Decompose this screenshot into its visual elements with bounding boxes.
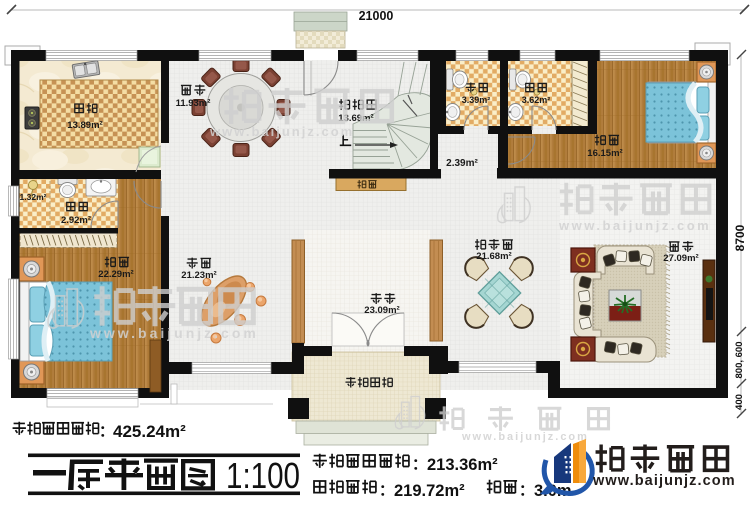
svg-text:213.36m²: 213.36m² bbox=[427, 456, 498, 474]
svg-text:：: ： bbox=[519, 482, 534, 499]
svg-text:www.baijunjz.com: www.baijunjz.com bbox=[558, 218, 711, 233]
svg-text:：: ： bbox=[99, 423, 114, 440]
svg-text:21.23m²: 21.23m² bbox=[181, 270, 216, 281]
svg-text:1.32m²: 1.32m² bbox=[20, 192, 47, 202]
svg-text:www.baijunjz.com: www.baijunjz.com bbox=[461, 431, 589, 443]
svg-text:2.92m²: 2.92m² bbox=[61, 215, 91, 226]
svg-text:23.09m²: 23.09m² bbox=[364, 305, 399, 316]
svg-text:21.68m²: 21.68m² bbox=[476, 251, 511, 262]
svg-text:2.39m²: 2.39m² bbox=[446, 158, 478, 169]
svg-text:1:100: 1:100 bbox=[226, 455, 300, 496]
svg-text:21000: 21000 bbox=[359, 9, 394, 23]
svg-text:27.09m²: 27.09m² bbox=[663, 253, 698, 264]
svg-text:：: ： bbox=[412, 456, 427, 473]
svg-text:16.15m²: 16.15m² bbox=[587, 148, 622, 159]
svg-text:：: ： bbox=[379, 482, 394, 499]
svg-text:3.62m²: 3.62m² bbox=[522, 95, 551, 105]
svg-text:425.24m²: 425.24m² bbox=[113, 422, 186, 441]
svg-text:3.39m²: 3.39m² bbox=[462, 95, 491, 105]
svg-text:800, 600: 800, 600 bbox=[734, 342, 745, 379]
svg-text:13.89m²: 13.89m² bbox=[67, 120, 102, 131]
svg-text:400: 400 bbox=[734, 394, 745, 410]
svg-text:www.baijunjz.com: www.baijunjz.com bbox=[592, 473, 736, 489]
svg-text:www.baijunjz.com: www.baijunjz.com bbox=[209, 124, 354, 139]
svg-text:22.29m²: 22.29m² bbox=[98, 269, 133, 280]
svg-text:11.93m²: 11.93m² bbox=[176, 98, 211, 109]
svg-text:8700: 8700 bbox=[733, 224, 747, 251]
svg-text:www.baijunjz.com: www.baijunjz.com bbox=[89, 325, 259, 341]
svg-text:219.72m²: 219.72m² bbox=[394, 482, 465, 500]
